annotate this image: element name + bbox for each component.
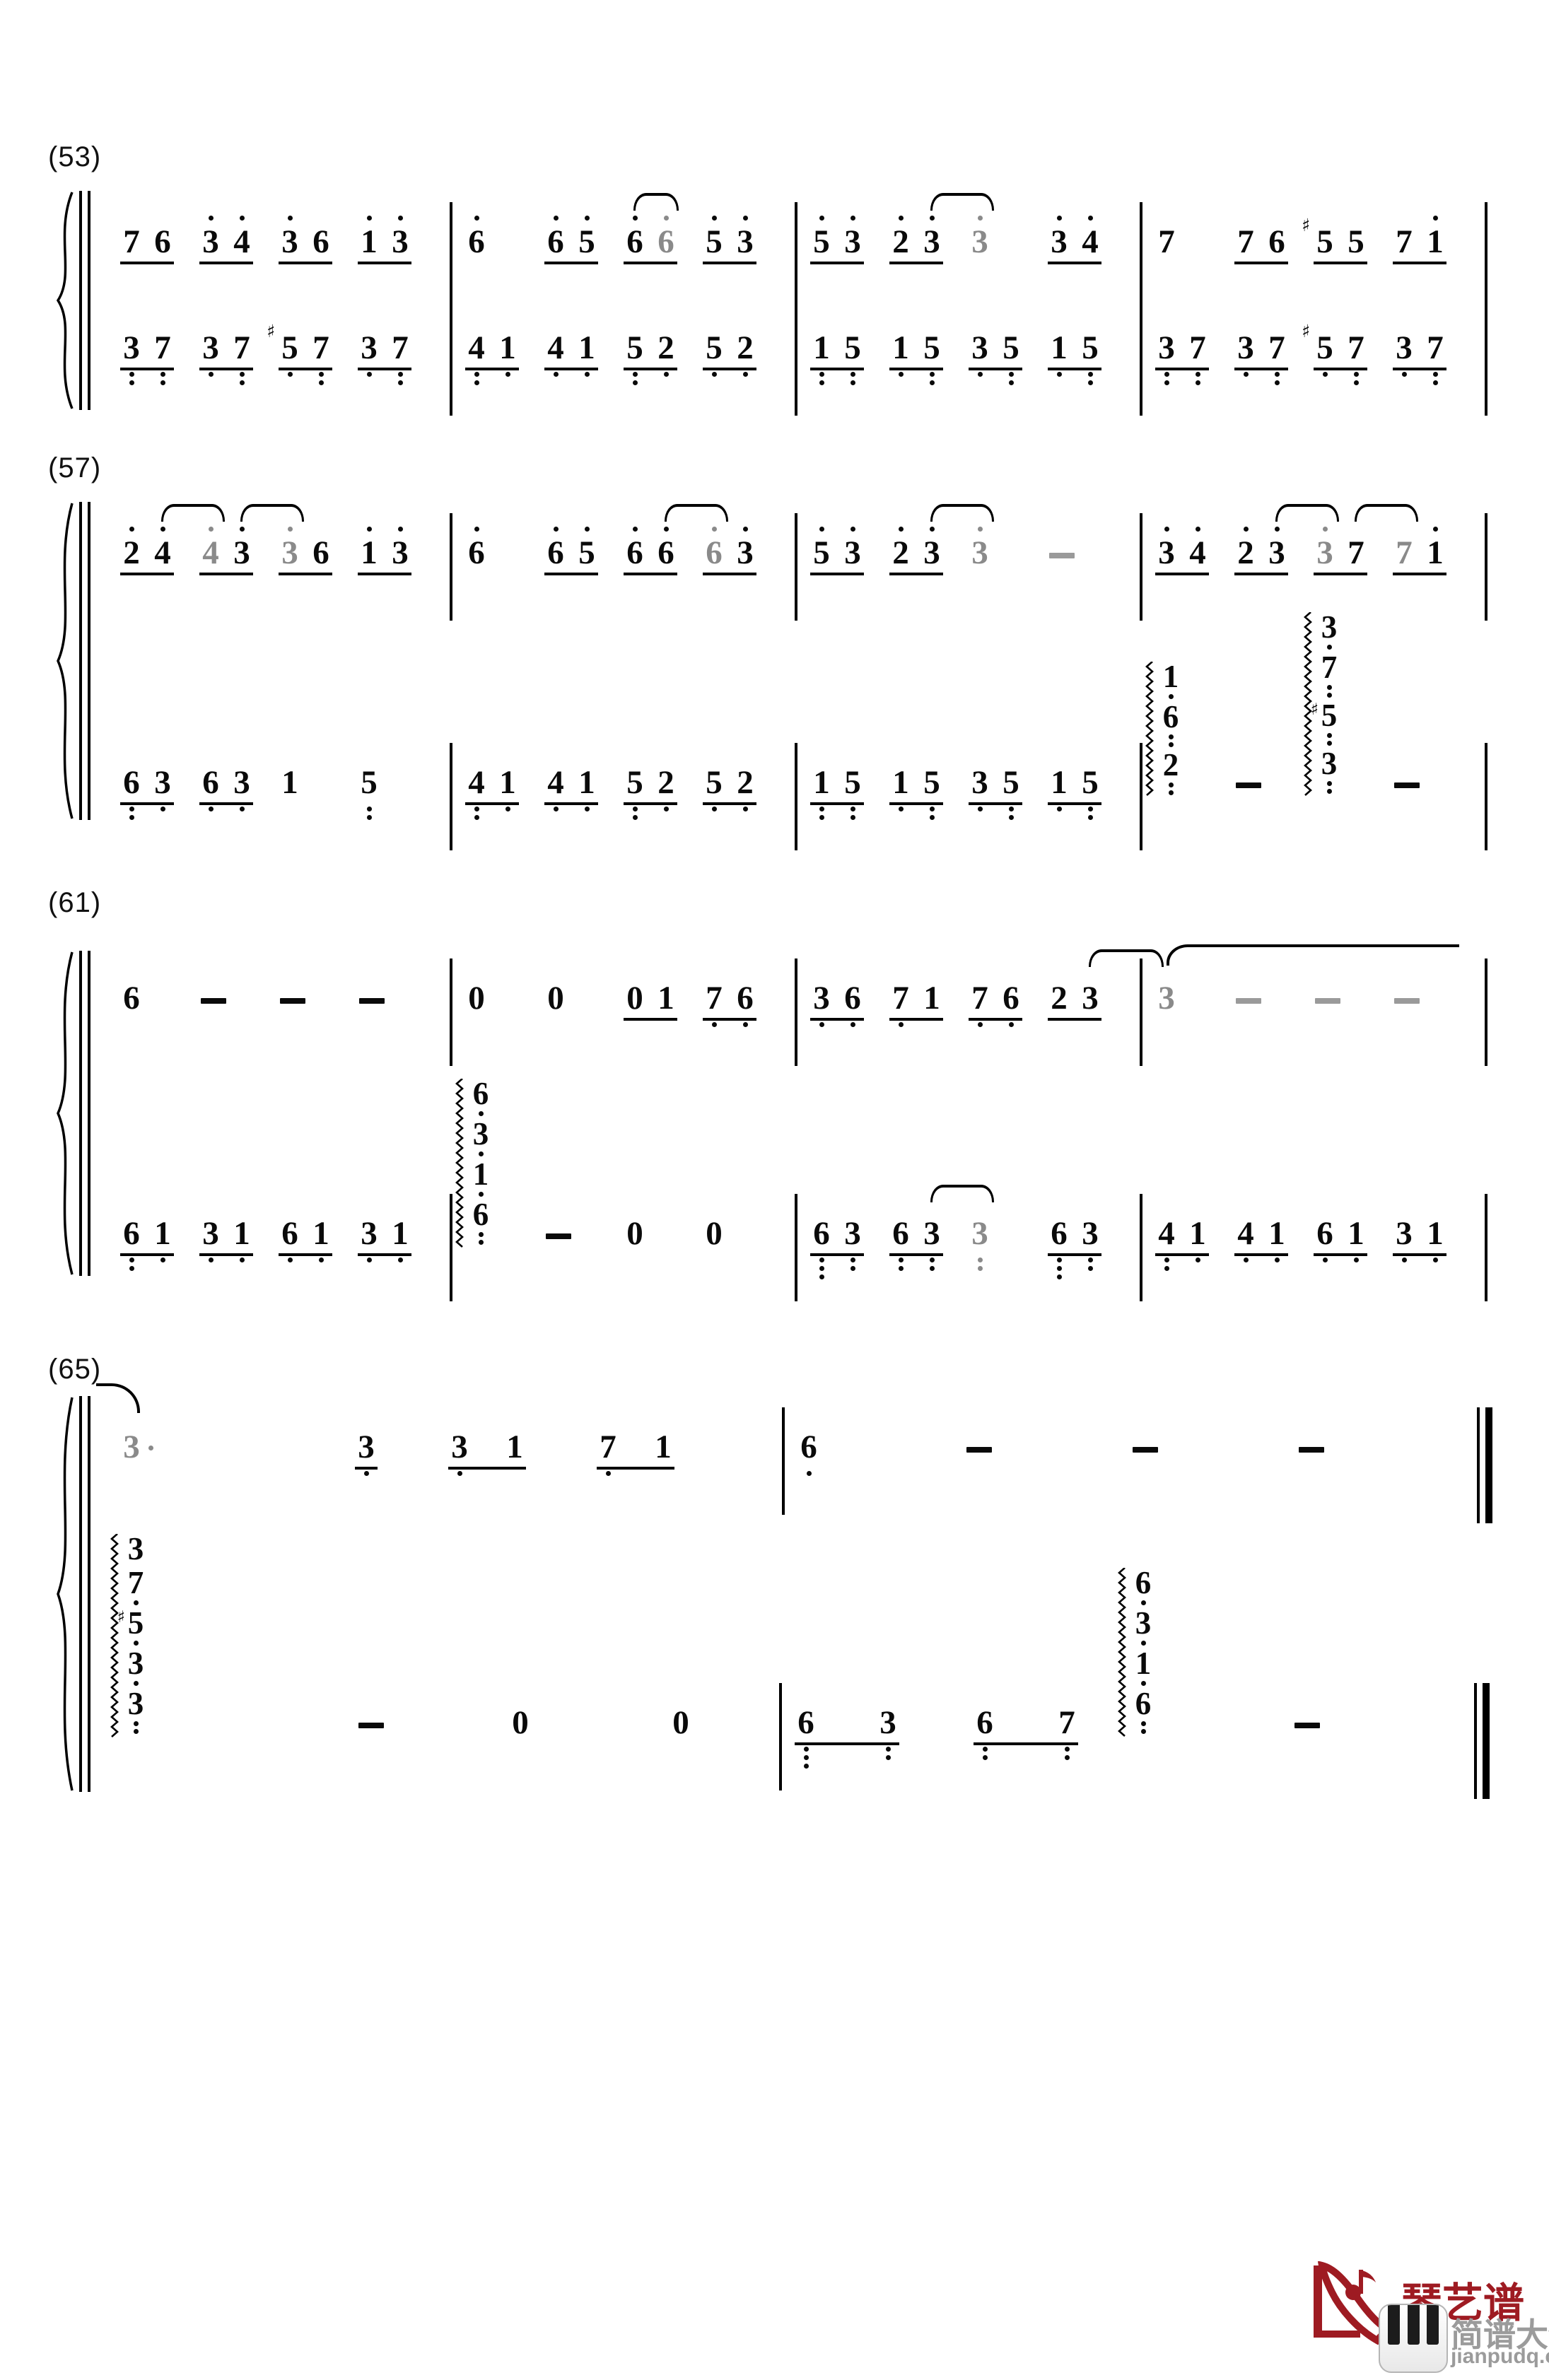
note-digit: 1 (813, 766, 830, 799)
octave-dot (819, 1022, 824, 1027)
octave-dot (712, 372, 717, 377)
beam-group: 63 (199, 751, 253, 811)
dash-rest (279, 967, 307, 1004)
beam-group: 37 (120, 317, 174, 385)
octave-dot (474, 216, 479, 221)
note-digit: 3 (202, 225, 219, 259)
note-digit: 4 (547, 766, 564, 799)
octave-dot (930, 1258, 935, 1262)
tie-arc-long (1167, 944, 1459, 966)
octave-dot (1275, 527, 1280, 532)
beam-line (355, 1467, 378, 1470)
octave-dot (978, 1258, 983, 1262)
note-digit: 5 (281, 331, 298, 365)
note-digit: 3 (392, 225, 409, 259)
octave-dot (319, 1258, 324, 1262)
beam-line (199, 262, 253, 264)
note-digit: 3 (813, 981, 830, 1015)
octave-dot (129, 1258, 134, 1262)
octave-dot (1164, 380, 1169, 385)
note-digit: 3 (1135, 1607, 1152, 1639)
note-digit: 3 (233, 536, 250, 570)
note: 1 (279, 751, 301, 799)
octave-dot (1354, 372, 1359, 377)
note-digit: 4 (547, 331, 564, 365)
note: 2 (889, 522, 912, 570)
note: 6 (465, 211, 488, 259)
note-digit: 4 (202, 536, 219, 570)
octave-dot (851, 372, 855, 377)
note-digit: 0 (672, 1706, 689, 1740)
beam-group: 52 (624, 751, 677, 820)
note-digit: 1 (923, 981, 940, 1015)
octave-dot (930, 1266, 935, 1271)
note-digit: 1 (1427, 536, 1444, 570)
octave-dot (319, 380, 324, 385)
beam-group: 76 (969, 967, 1022, 1027)
beam-group: ♯57 (279, 317, 332, 385)
note: 0 (544, 967, 567, 1015)
dash-rest (357, 1692, 385, 1728)
octave-dot (1088, 216, 1093, 221)
sheet-music-page: 琴艺谱 简谱大全 jianpudq.com (53)76343613665665… (0, 0, 1549, 2380)
dash-rest (1234, 751, 1263, 788)
note: 7 (1265, 317, 1288, 385)
chord-note: 3 (1321, 611, 1338, 650)
beam-group: 15 (810, 751, 864, 820)
note: 4 (465, 317, 488, 385)
octave-dot (819, 815, 824, 820)
system-start-barline (79, 502, 82, 820)
chord-note: 3 (128, 1687, 144, 1734)
note-digit: 7 (1396, 536, 1413, 570)
note-digit: 5 (626, 766, 643, 799)
barline (450, 202, 452, 310)
octave-dot (474, 807, 479, 811)
note: 3 (151, 751, 174, 820)
octave-dot (819, 216, 824, 221)
beam-group: 67 (974, 1692, 1078, 1760)
note-digit: 0 (468, 981, 485, 1015)
note-digit: 5 (706, 225, 723, 259)
octave-dot (1323, 1258, 1328, 1262)
beam-group: 37 (358, 317, 411, 385)
dash-rest (1131, 1416, 1159, 1453)
octave-dot (367, 527, 372, 532)
note-digit: 0 (706, 1217, 723, 1250)
note-digit: 4 (233, 225, 250, 259)
note-digit: 7 (1348, 536, 1364, 570)
octave-dot (160, 807, 165, 811)
note-digit: 1 (578, 331, 595, 365)
note-digit: 7 (1268, 331, 1285, 365)
note-digit: 4 (468, 331, 485, 365)
barline (795, 959, 797, 1066)
beam-line (810, 1253, 864, 1256)
note-digit: 3 (971, 536, 988, 570)
octave-dot (633, 372, 638, 377)
tie-arc (930, 1185, 994, 1202)
dash-rest (358, 967, 386, 1004)
beam-line (465, 368, 519, 370)
beam-group: 13 (358, 211, 411, 259)
beam-group: 15 (889, 317, 943, 385)
barline (450, 1194, 452, 1301)
note-digit: 6 (1003, 981, 1019, 1015)
beam-line (889, 573, 943, 575)
beam-group: 71 (889, 967, 943, 1027)
tie-arc (240, 504, 304, 522)
system-start-barline (79, 1396, 82, 1792)
octave-dot (886, 1747, 891, 1752)
note: 3 (1265, 522, 1288, 570)
note: 3 (1048, 211, 1070, 259)
note-digit: 1 (1163, 660, 1179, 693)
beam-line (1048, 802, 1101, 805)
octave-dot (819, 1266, 824, 1271)
arpeggio-chord: 37♯533 (120, 1532, 151, 1735)
note-digit: 6 (844, 981, 861, 1015)
note-digit: 2 (1163, 749, 1179, 781)
note: 7 (230, 317, 253, 385)
measure-number: (61) (48, 887, 101, 919)
octave-dot (743, 216, 748, 221)
system-start-barline (88, 951, 90, 1276)
note-digit: 5 (626, 331, 643, 365)
beam-line (703, 802, 756, 805)
octave-dot (479, 1192, 484, 1197)
octave-dot (930, 527, 935, 532)
beam-group: 01 (624, 967, 677, 1015)
note-digit: 5 (128, 1607, 144, 1639)
octave-dot (160, 1258, 165, 1262)
octave-dot (479, 1151, 484, 1156)
note-digit: 6 (473, 1198, 489, 1231)
octave-dot (664, 807, 669, 811)
octave-dot (1009, 380, 1014, 385)
note: 3 (969, 317, 991, 385)
staff-system: (57)244336136656663532333423377163631541… (42, 452, 1549, 848)
beam-group: 15 (1048, 751, 1101, 820)
octave-dot (978, 216, 983, 221)
octave-dot (1141, 1641, 1146, 1646)
note-digit: 6 (547, 536, 564, 570)
note-digit: 3 (1051, 225, 1068, 259)
octave-dot (606, 1471, 611, 1476)
octave-dot (633, 380, 638, 385)
note-digit: 6 (312, 225, 329, 259)
note: 3 (734, 522, 756, 570)
octave-dot (1275, 372, 1280, 377)
note-digit: 3 (923, 1217, 940, 1250)
note-digit: 7 (392, 331, 409, 365)
octave-dot (134, 1721, 139, 1726)
note-digit: 2 (737, 331, 754, 365)
octave-dot (930, 216, 935, 221)
octave-dot (804, 1764, 809, 1769)
note-digit: 1 (361, 225, 378, 259)
note-digit: 5 (1003, 331, 1019, 365)
note-digit: 1 (281, 766, 298, 799)
note: 3 (969, 522, 991, 570)
note-digit: 2 (657, 331, 674, 365)
note: 1 (1424, 522, 1446, 570)
beam-group: 41 (544, 317, 598, 377)
octave-dot (712, 216, 717, 221)
note-digit: 6 (657, 225, 674, 259)
octave-dot (930, 380, 935, 385)
note: 6 (465, 522, 488, 570)
octave-dot (1433, 1258, 1438, 1262)
beam-group: 35 (969, 751, 1022, 820)
beam-line (810, 802, 864, 805)
octave-dot (1327, 781, 1332, 786)
barline (795, 513, 797, 621)
octave-dot (160, 527, 165, 532)
octave-dot (134, 1600, 139, 1605)
note-digit: 3 (1396, 331, 1413, 365)
note-digit: 3 (737, 225, 754, 259)
octave-dot (367, 807, 372, 811)
beam-group: 37 (1155, 317, 1209, 385)
note-digit: 3 (281, 225, 298, 259)
barline (1140, 308, 1142, 416)
arpeggio-chord: 6316 (1128, 1566, 1159, 1735)
note: 3 (1155, 967, 1178, 1015)
note-digit: 3 (923, 225, 940, 259)
note-digit: 2 (892, 225, 909, 259)
barline (795, 1194, 797, 1301)
beam-group: 36 (279, 522, 332, 570)
note: 1 (810, 317, 833, 385)
octave-dot (1275, 380, 1280, 385)
note-digit: 1 (655, 1430, 672, 1464)
note-digit: 1 (499, 766, 516, 799)
note: 3 (920, 211, 943, 259)
octave-dot (899, 372, 904, 377)
note-digit: 7 (1189, 331, 1206, 365)
note: 2 (889, 211, 912, 259)
note: 3 (120, 1416, 143, 1464)
beam-group: 31 (199, 1202, 253, 1262)
beam-line (1155, 368, 1209, 370)
beam-line (1234, 1253, 1288, 1256)
barline (1485, 513, 1487, 621)
beam-group: 53 (703, 211, 756, 259)
note-digit: 6 (473, 1077, 489, 1110)
note-digit: 6 (468, 536, 485, 570)
octave-dot (1354, 380, 1359, 385)
octave-dot (851, 380, 855, 385)
octave-dot (1327, 733, 1332, 738)
tie-arc (1275, 504, 1339, 522)
note-digit: 1 (473, 1158, 489, 1190)
note-digit: 3 (233, 766, 250, 799)
note: ♯5 (1314, 317, 1336, 385)
beam-group: 66 (624, 522, 677, 570)
note-digit: 4 (468, 766, 485, 799)
octave-dot (554, 527, 559, 532)
arpeggio-wavy-icon (455, 1079, 464, 1250)
beam-group: 52 (703, 317, 756, 377)
note: 3 (358, 317, 380, 385)
chord-note: 3 (1321, 747, 1338, 794)
dash-rest (1234, 967, 1263, 1004)
beam-group: 52 (703, 751, 756, 811)
note-digit: 3 (358, 1430, 375, 1464)
beam-line (1234, 262, 1288, 264)
beam-line (703, 368, 756, 370)
octave-dot (983, 1755, 988, 1760)
note: 6 (624, 211, 646, 259)
note-digit: 3 (154, 766, 171, 799)
octave-dot (851, 1266, 855, 1271)
octave-dot (899, 216, 904, 221)
note: 1 (1186, 1202, 1209, 1271)
beam-line (1155, 1253, 1209, 1256)
note: 5 (575, 522, 598, 570)
octave-dot (1196, 372, 1200, 377)
note-digit: 7 (600, 1430, 616, 1464)
octave-dot (1433, 527, 1438, 532)
note: 3 (1079, 1202, 1101, 1279)
note-digit: 7 (312, 331, 329, 365)
octave-dot (899, 1258, 904, 1262)
octave-dot (367, 372, 372, 377)
beam-group: 34 (199, 211, 253, 259)
note: 6 (974, 1692, 996, 1760)
barline (450, 308, 452, 416)
note: 6 (797, 1416, 820, 1476)
note-digit: 5 (1348, 225, 1364, 259)
beam-line (544, 368, 598, 370)
octave-dot (398, 1258, 403, 1262)
note: 1 (655, 967, 677, 1015)
note: 4 (1186, 522, 1209, 570)
note: 0 (465, 967, 488, 1015)
octave-dot (1057, 216, 1062, 221)
note: 7 (389, 317, 411, 385)
note: 7 (1345, 317, 1367, 385)
arpeggio-wavy-icon (110, 1534, 119, 1740)
octave-dot (240, 216, 245, 221)
note: 5 (1079, 751, 1101, 820)
note-digit: 5 (706, 766, 723, 799)
system-start-barline (88, 191, 90, 410)
octave-dot (129, 815, 134, 820)
octave-dot (930, 815, 935, 820)
note: 7 (1056, 1692, 1078, 1760)
note-digit: 3 (1316, 536, 1333, 570)
beam-group: 23 (889, 211, 943, 259)
octave-dot (633, 807, 638, 811)
beam-group: 15 (1048, 317, 1101, 385)
note-digit: 6 (312, 536, 329, 570)
note-digit: 1 (1427, 225, 1444, 259)
octave-dot (479, 1232, 484, 1237)
beam-line (199, 802, 253, 805)
note: 3 (920, 1202, 943, 1271)
octave-dot (1275, 1258, 1280, 1262)
note-digit: 3 (844, 225, 861, 259)
note: 6 (810, 1202, 833, 1279)
octave-dot (1327, 741, 1332, 746)
note: 3 (841, 211, 864, 259)
note: ♯5 (1314, 211, 1336, 259)
beam-group: 71 (1393, 211, 1446, 259)
octave-dot (807, 1471, 812, 1476)
note: 4 (1155, 1202, 1178, 1271)
beam-line (544, 802, 598, 805)
note-digit: 1 (361, 536, 378, 570)
beam-group: 53 (810, 211, 864, 259)
note: 0 (670, 1692, 692, 1740)
barline (450, 959, 452, 1066)
note-digit: 7 (1058, 1706, 1075, 1740)
note: 6 (795, 1692, 817, 1769)
chord-note: 3 (128, 1532, 144, 1565)
octave-dot (978, 1022, 983, 1027)
note-digit: 5 (706, 331, 723, 365)
note-digit: 6 (202, 766, 219, 799)
barline (782, 1407, 785, 1515)
beam-line (199, 368, 253, 370)
note-digit: 5 (844, 331, 861, 365)
beam-line (279, 1253, 332, 1256)
note: 3 (1393, 317, 1415, 385)
note-digit: 3 (451, 1430, 468, 1464)
note-digit: 3 (971, 1217, 988, 1250)
note-digit: 3 (361, 1217, 378, 1250)
note-digit: 5 (1316, 225, 1333, 259)
octave-dot (554, 807, 559, 811)
note-digit: 1 (813, 331, 830, 365)
octave-dot (240, 807, 245, 811)
octave-dot (1057, 372, 1062, 377)
octave-dot (1164, 372, 1169, 377)
sharp-icon: ♯ (117, 1608, 125, 1626)
note: 3 (877, 1692, 899, 1769)
beam-group: 41 (465, 317, 519, 385)
note-digit: 3 (879, 1706, 896, 1740)
augmentation-dot (148, 1446, 153, 1450)
octave-dot (1088, 380, 1093, 385)
octave-dot (1433, 380, 1438, 385)
beam-group: 34 (1155, 522, 1209, 570)
beam-group: 36 (279, 211, 332, 259)
note: 6 (1265, 211, 1288, 259)
note-digit: 3 (1321, 611, 1338, 643)
note-digit: 7 (706, 981, 723, 1015)
note-digit: 6 (737, 981, 754, 1015)
note: 6 (120, 1202, 143, 1271)
note-digit: 6 (813, 1217, 830, 1250)
beam-line (810, 368, 864, 370)
note-digit: 1 (892, 766, 909, 799)
note-digit: 3 (1268, 536, 1285, 570)
octave-dot (1009, 372, 1014, 377)
note-digit: 6 (892, 1217, 909, 1250)
note: 6 (151, 211, 174, 259)
octave-dot (1244, 372, 1249, 377)
note-digit: 3 (123, 1430, 140, 1464)
note-digit: 6 (123, 981, 140, 1015)
note-digit: 2 (1051, 981, 1068, 1015)
octave-dot (240, 527, 245, 532)
beam-group: 31 (448, 1416, 526, 1476)
beam-line (1234, 573, 1288, 575)
beam-line (120, 262, 174, 264)
